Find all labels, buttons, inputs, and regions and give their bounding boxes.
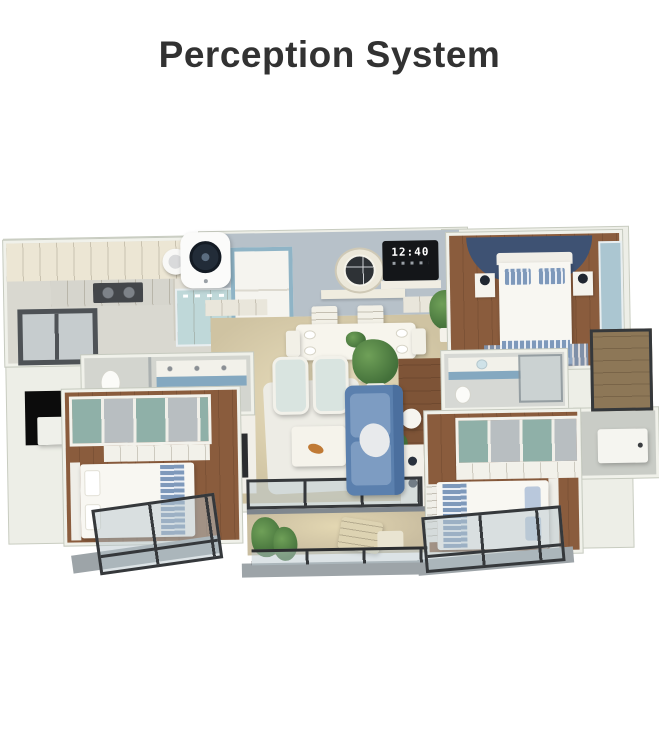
railing-bar [101, 539, 218, 558]
cooktop [93, 282, 143, 303]
camera-led [204, 279, 208, 283]
nightstand [573, 271, 593, 295]
bathroom-counter [448, 357, 520, 372]
clock-face [343, 254, 376, 287]
kitchen-window [17, 308, 98, 365]
cabinet-decor [183, 294, 235, 298]
bathroom-vanity [448, 371, 520, 380]
place-setting [396, 329, 408, 338]
lamp [578, 273, 588, 283]
lamp [480, 275, 490, 285]
railing-bar [428, 543, 562, 558]
sink-basin [476, 359, 487, 369]
dining-chair [286, 331, 300, 357]
display-shelf [381, 280, 441, 289]
dining-chair [412, 328, 426, 354]
place-setting [304, 330, 316, 339]
armchair [272, 356, 309, 415]
camera-lens [189, 241, 222, 274]
floorplan-3d-render: 12:40 [4, 224, 658, 580]
plant-leaves [352, 339, 399, 386]
pillow [84, 470, 100, 496]
armchair [312, 356, 349, 415]
smart-wall-display: 12:40 [382, 240, 439, 281]
vase [408, 457, 417, 466]
camera-lens-glint [201, 253, 209, 261]
pillow [539, 268, 565, 284]
page-title: Perception System [0, 34, 659, 76]
page: Perception System [0, 0, 659, 738]
sofa [345, 385, 405, 496]
sofa-backrest [393, 385, 405, 495]
shower-enclosure [518, 354, 563, 403]
dresser [456, 462, 580, 480]
dresser [104, 444, 210, 462]
wardrobe [455, 416, 580, 466]
outdoor-unit [598, 428, 649, 463]
balcony-right-top [590, 328, 653, 411]
tv-screen [241, 433, 249, 477]
radiator-left [205, 299, 267, 316]
place-setting [304, 346, 316, 355]
display-time: 12:40 [382, 245, 438, 259]
unit-knob [638, 443, 643, 448]
balcony-railing [252, 546, 428, 565]
pillow [505, 268, 531, 284]
bathroom-vanity [157, 375, 247, 387]
display-subtext [393, 261, 429, 265]
wardrobe [69, 394, 212, 446]
security-camera [180, 232, 231, 289]
nightstand [475, 273, 495, 297]
bathroom-counter [156, 359, 246, 377]
